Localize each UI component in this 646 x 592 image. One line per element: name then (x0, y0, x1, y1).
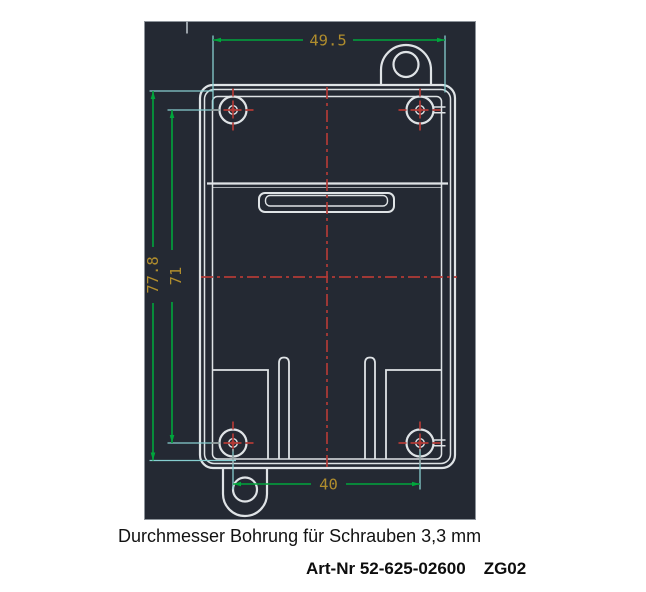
technical-drawing: 49.5 77.8 71 (144, 21, 476, 520)
screw-hole-top-right (399, 89, 442, 132)
part-code: ZG02 (484, 559, 527, 578)
mounting-tab-bottom (223, 468, 267, 517)
arrowhead-bottom (151, 453, 156, 461)
arrowhead-top (170, 110, 175, 118)
dimension-value-top-width: 49.5 (309, 32, 346, 50)
dimension-value-inner-height: 77.8 (144, 256, 162, 293)
screenshot-page: 49.5 77.8 71 (0, 0, 646, 592)
part-number: Art-Nr 52-625-02600 (306, 559, 466, 578)
arrowhead-right (437, 38, 445, 43)
arrowhead-left (213, 38, 221, 43)
cad-viewport: 49.5 77.8 71 (144, 21, 476, 520)
dimension-top-width: 49.5 (213, 32, 445, 110)
mounting-tab-top-hole (394, 52, 419, 77)
center-dot (231, 108, 235, 112)
mounting-tab-bottom-hole (233, 478, 257, 502)
arrowhead-top (151, 91, 156, 99)
center-dot (418, 108, 422, 112)
center-dot (231, 441, 235, 445)
arrowhead-right (412, 482, 420, 487)
center-dot (418, 441, 422, 445)
mounting-tab-bottom-outline (223, 468, 267, 517)
dimension-value-hole-spacing-horizontal: 40 (319, 476, 338, 494)
dimension-inner-height: 77.8 (144, 91, 236, 461)
bottom-rib-right (365, 358, 375, 460)
part-number-line: Art-Nr 52-625-02600ZG02 (306, 559, 526, 579)
arrowhead-bottom (170, 435, 175, 443)
caption-drill-diameter: Durchmesser Bohrung für Schrauben 3,3 mm (118, 526, 481, 546)
dimension-value-hole-spacing-vertical: 71 (167, 267, 185, 286)
bottom-rib-left (279, 358, 289, 460)
mounting-tab-top (381, 45, 431, 86)
centerlines (201, 87, 457, 471)
